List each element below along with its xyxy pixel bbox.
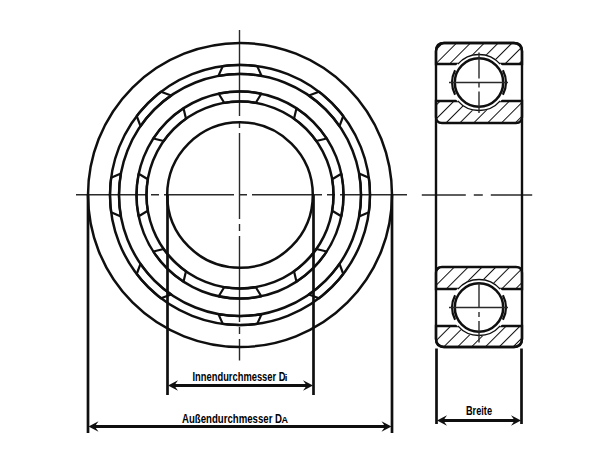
svg-text:A: A [282, 415, 289, 425]
svg-text:Breite: Breite [466, 404, 492, 418]
svg-text:Außendurchmesser D: Außendurchmesser D [182, 411, 282, 426]
svg-text:Innendurchmesser D: Innendurchmesser D [193, 369, 286, 384]
svg-text:i: i [285, 372, 288, 383]
